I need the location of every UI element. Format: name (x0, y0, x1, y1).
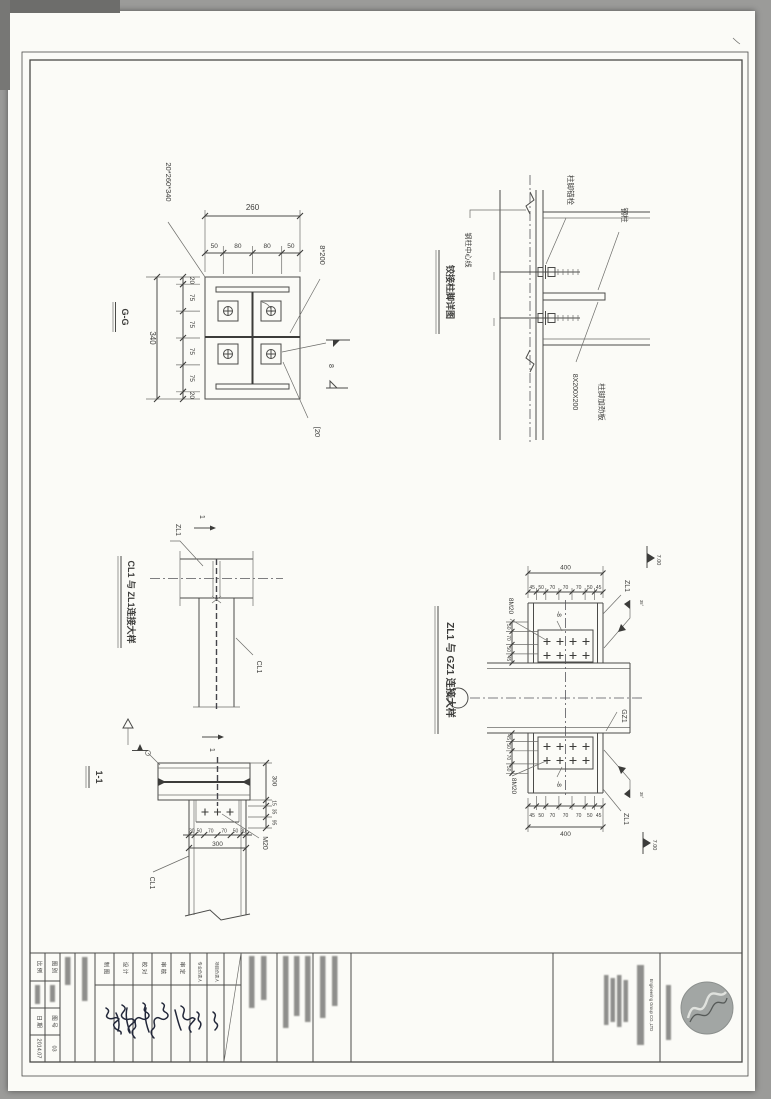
illegible-text (249, 956, 255, 1008)
sign-label: 审 定 (179, 962, 187, 975)
title-block: 比 例 日 期 2014.07 图 别 图 号 03 制 图 设 计 校 对 审… (30, 953, 742, 1062)
dim-label: 50 (211, 243, 219, 250)
dim-label: 400 (560, 565, 571, 572)
dim-label: 70 (505, 755, 511, 761)
dimension-lines (146, 210, 303, 402)
dim-label: 15 (271, 800, 277, 806)
dim-label: 260 (246, 203, 260, 212)
illegible-text (35, 985, 40, 1004)
dim-label: 45 (529, 585, 535, 591)
detail-cl1-zl1: ZL1 1 1 CL1 CL1 与 ZL1连接大样 (118, 515, 283, 752)
detail-title: ZL1 与 GZ1 连接大样 (444, 622, 457, 718)
dim-label: 50 (287, 243, 295, 250)
date-label: 日 期 (36, 1015, 43, 1028)
number-value: 03 (51, 1045, 57, 1051)
illegible-text (604, 975, 609, 1025)
illegible-text (283, 956, 289, 1028)
bolt-group-callout: 8M20 (507, 598, 514, 615)
level-mark-icon (647, 546, 655, 568)
illegible-text (65, 957, 71, 985)
scale-label: 比 例 (36, 961, 44, 974)
dim-label: 20 (188, 277, 195, 285)
date-value: 2014.07 (36, 1039, 42, 1059)
company-name-illegible (637, 965, 644, 1045)
illegible-text (82, 957, 88, 1001)
dim-label: 50 (587, 813, 593, 819)
illegible-text (261, 956, 267, 1000)
dim-label: 50 (538, 585, 544, 591)
section-number: 1 (198, 515, 205, 519)
weld-flag-icon (604, 600, 630, 648)
dim-label: 70 (576, 585, 582, 591)
illegible-text (294, 956, 300, 1016)
weld-size-label: 8 (327, 364, 334, 368)
illegible-text (305, 956, 311, 1022)
dim-label: 45 (505, 656, 511, 662)
company-english-name: Engineering Group CO.,LTD (649, 979, 654, 1032)
dim-label: 50 (587, 585, 593, 591)
dim-label: 70 (550, 813, 556, 819)
anchor-bolt-label: 柱脚锚栓 (566, 175, 576, 205)
level-mark-icon (643, 832, 651, 854)
sign-label: 项目负责人 (214, 962, 221, 984)
dim-label: 50 (197, 829, 203, 835)
dimension-lines (183, 760, 272, 851)
detail-section-1-1: 30 50 70 70 50 30 300 300 15 35 95 M20 C… (86, 744, 278, 920)
dim-label: 50 (505, 766, 511, 772)
section-cut-mark (202, 735, 224, 740)
dim-label: 75 (188, 375, 195, 383)
bolt-callout: M20 (261, 836, 268, 850)
dim-label: 300 (271, 776, 278, 787)
weld-flag-icon (123, 719, 133, 745)
dim-label: 300 (212, 841, 223, 848)
dim-label: 35 (271, 809, 277, 815)
sign-label: 设 计 (122, 962, 130, 975)
company-logo (681, 982, 733, 1034)
plate-callout: -8 (555, 611, 562, 617)
illegible-text (50, 985, 55, 1002)
number-label: 图 号 (51, 1015, 59, 1028)
dim-label: 45 (596, 585, 602, 591)
dim-label: 70 (550, 585, 556, 591)
dim-label: 70 (505, 635, 511, 641)
level-value: 7.00 (655, 555, 661, 566)
anchor-bolt-symbols (223, 302, 276, 359)
sheet-frame (22, 38, 748, 1076)
dim-label: 75 (188, 348, 195, 356)
dim-label: 70 (221, 829, 227, 835)
column-label: GZ1 (620, 709, 627, 723)
illegible-text (624, 980, 629, 1022)
weld-flag-icon (604, 750, 630, 798)
weld-symbol (282, 340, 350, 418)
illegible-text (332, 956, 338, 1006)
dim-label: 400 (560, 831, 571, 838)
beam-label: CL1 (255, 661, 262, 674)
stiffener-label: 柱脚加劲板 (597, 383, 607, 421)
dim-label: 75 (188, 321, 195, 329)
illegible-text (666, 985, 671, 1040)
dim-label: 80 (234, 243, 242, 250)
dimension-lines (506, 566, 606, 832)
section-cut-mark (194, 526, 216, 531)
illegible-text (611, 978, 616, 1022)
dim-label: 45 (529, 813, 535, 819)
weld-note: 35° (639, 600, 644, 607)
stiffener-callout: 8*200 (318, 245, 327, 265)
dim-label: 340 (148, 331, 157, 345)
beam-label: ZL1 (622, 813, 629, 825)
dim-label: 50 (505, 646, 511, 652)
dim-label: 70 (563, 585, 569, 591)
sign-label: 校 对 (141, 962, 149, 975)
dim-label: 80 (263, 243, 271, 250)
dim-label: 20 (188, 392, 195, 400)
weld-flag-icon (132, 744, 160, 765)
zl1-gz1-linework (448, 600, 642, 796)
sign-label: 制 图 (103, 962, 111, 975)
illegible-text (320, 956, 326, 1018)
bolt-group-callout: 8M20 (510, 778, 517, 795)
plate-callout: -8 (555, 781, 562, 787)
dim-label: 70 (208, 829, 214, 835)
drawing-canvas: 260 50 80 80 50 340 20 75 75 75 75 20 20… (0, 0, 771, 1099)
section-number: 1 (208, 748, 215, 752)
cl1-zl1-linework (150, 551, 283, 711)
dim-label: 50 (505, 624, 511, 630)
column-label: CL1 (148, 877, 155, 890)
title-block-grid (30, 953, 742, 1062)
detail-zl1-gz1: 400 45 50 70 70 70 50 45 400 45 50 70 70… (435, 546, 661, 854)
weld-note: 35° (639, 792, 644, 799)
dim-label: 75 (188, 294, 195, 302)
detail-title: CL1 与 ZL1连接大样 (126, 560, 137, 643)
beam-label: ZL1 (623, 580, 630, 592)
detail-title: 1-1 (94, 770, 104, 783)
dim-label: 70 (576, 813, 582, 819)
dim-label: 50 (233, 829, 239, 835)
company-block: Engineering Group CO.,LTD (604, 965, 733, 1045)
centerline-label: 钢柱中心线 (464, 233, 473, 268)
detail-base-plate-plan: 260 50 80 80 50 340 20 75 75 75 75 20 20… (113, 162, 350, 437)
illegible-text (617, 975, 622, 1027)
level-value: 7.00 (651, 840, 657, 851)
stiffener-size-label: 8X200X200 (571, 374, 578, 411)
anchor-bolt-elevation (494, 265, 580, 326)
dim-label: 30 (189, 829, 195, 835)
dim-label: 50 (538, 813, 544, 819)
beam-label: ZL1 (174, 524, 181, 536)
dim-label: 50 (505, 743, 511, 749)
handwritten-signature (106, 1003, 218, 1038)
detail-title: 铰接柱脚详图 (445, 265, 456, 319)
detail-column-base: 柱脚锚栓 钢柱 钢柱中心线 8X200X200 柱脚加劲板 铰接柱脚详图 (436, 175, 650, 445)
detail-title: G-G (120, 309, 130, 326)
channel-callout: [20 (313, 427, 322, 437)
dim-label: 45 (505, 734, 511, 740)
steel-column-label: 钢柱 (620, 208, 630, 223)
sign-label: 专业负责人 (197, 962, 204, 984)
sign-label: 审 核 (160, 962, 168, 975)
category-label: 图 别 (51, 961, 59, 974)
dim-label: 95 (271, 820, 277, 826)
scanned-drawing-sheet: 260 50 80 80 50 340 20 75 75 75 75 20 20… (0, 0, 771, 1099)
dim-label: 70 (563, 813, 569, 819)
section-linework (158, 757, 250, 920)
base-plate-linework (205, 277, 300, 399)
plate-callout: 20*260*340 (164, 162, 173, 201)
dim-label: 45 (596, 813, 602, 819)
